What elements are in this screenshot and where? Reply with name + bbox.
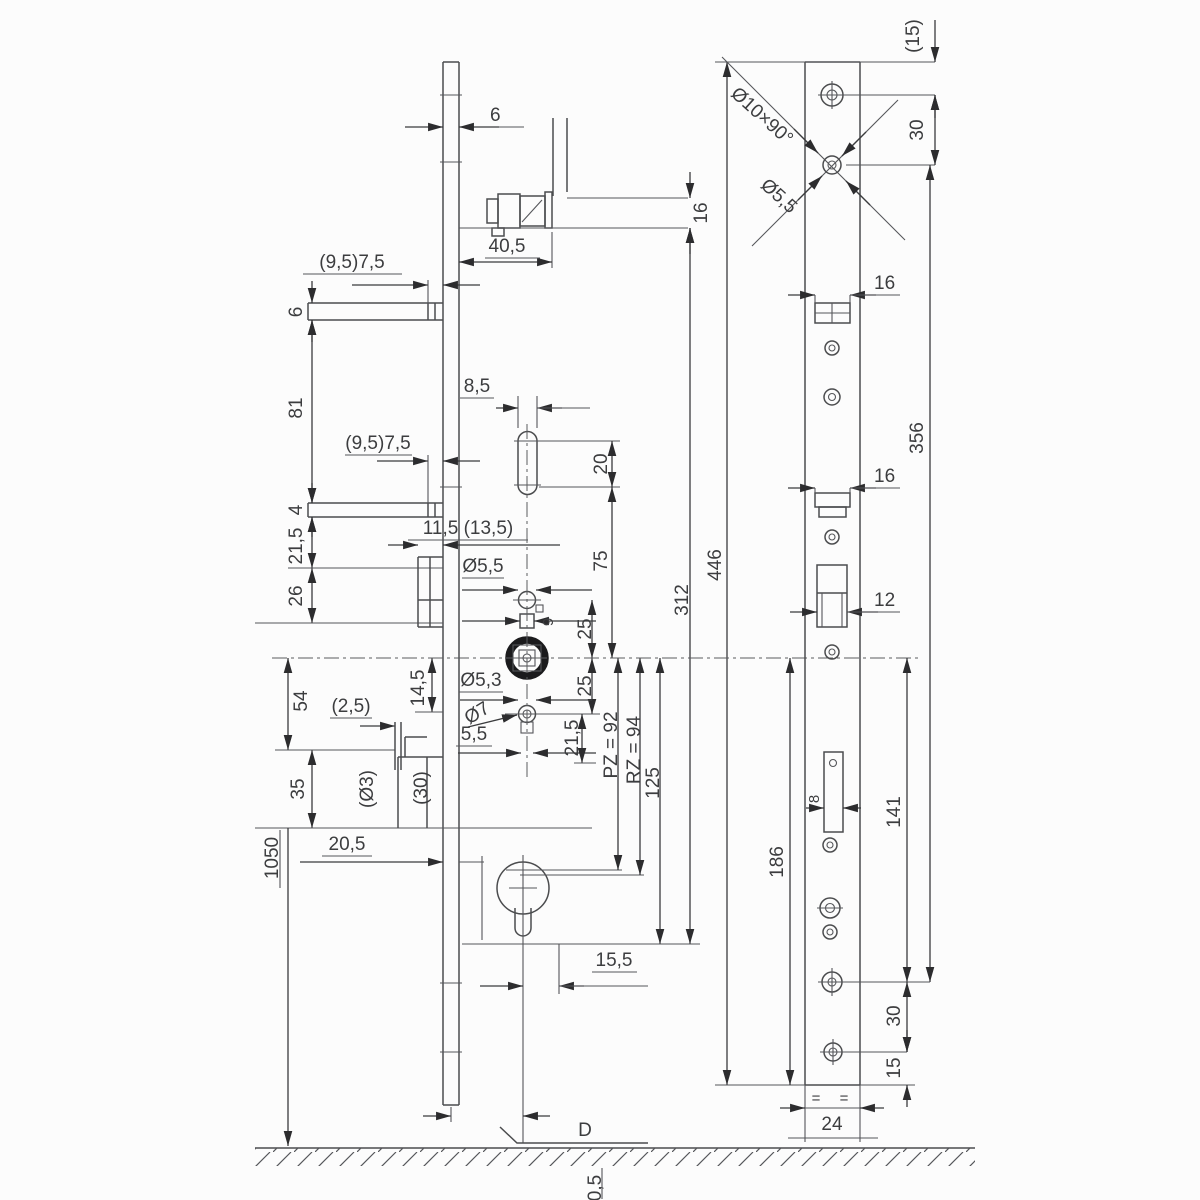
- dim-bottom-margin: 15: [884, 1057, 905, 1078]
- latch-slot-1: [815, 303, 850, 323]
- dim-strip-width: 6: [490, 105, 501, 126]
- datum-label: D: [578, 1120, 592, 1141]
- dim-356: 356: [907, 422, 928, 454]
- dim-slot2-width: 16: [874, 466, 895, 487]
- faceplate-strip: [440, 62, 462, 1105]
- rod-slot: [824, 752, 843, 832]
- dim-slot1-width: 16: [874, 273, 895, 294]
- dim-30p: (30): [411, 771, 432, 805]
- profile-cylinder: [497, 855, 549, 1143]
- dim-countersink: Ø10×90°: [726, 83, 796, 149]
- dim-keep1-offset: (9,5)7,5: [319, 252, 384, 273]
- dim-21-5-lower: 21,5: [562, 720, 583, 757]
- dim-spindle-square: 9: [540, 618, 557, 626]
- dim-5-5: 5,5: [461, 724, 487, 745]
- dim-plate-thickness: 4: [286, 504, 307, 515]
- dim-pz: PZ = 92: [601, 711, 622, 778]
- drawing-page: 16 40,5 6 (9,5)7,5 6 81: [0, 0, 1200, 1200]
- dim-75: 75: [591, 550, 612, 571]
- keep-band-1: [308, 303, 443, 320]
- dim-plate-width: 24: [821, 1114, 843, 1135]
- cable-connector: [487, 118, 567, 236]
- dim-slot-8: 8: [806, 795, 823, 803]
- side-view: 16 40,5 6 (9,5)7,5 6 81: [255, 62, 918, 1200]
- dim-hole-upper: Ø5,5: [462, 556, 503, 577]
- dim-hole-dia: Ø5,5: [756, 175, 801, 218]
- dim-floor-clearance: 0,5: [585, 1175, 606, 1200]
- dim-2-5: (2,5): [331, 696, 370, 717]
- dim-hole-pitch-top: 30: [907, 119, 928, 140]
- dim-125: 125: [643, 767, 664, 799]
- dim-141: 141: [884, 796, 905, 828]
- dim-25-upper: 25: [575, 618, 596, 639]
- ground-hatch: [255, 1148, 975, 1166]
- technical-drawing: 16 40,5 6 (9,5)7,5 6 81: [0, 0, 1200, 1200]
- dim-54: 54: [291, 690, 312, 712]
- dim-26: 26: [286, 585, 307, 606]
- equal-mark-left: =: [812, 1090, 821, 1107]
- dim-hole-pitch-bottom: 30: [884, 1005, 905, 1026]
- dim-312: 312: [672, 584, 693, 616]
- dim-21-5-upper: 21,5: [286, 528, 307, 565]
- dim-d3: (Ø3): [357, 770, 378, 808]
- dim-186: 186: [767, 846, 788, 878]
- dim-14-5: 14,5: [408, 670, 429, 707]
- dim-slot-height: 20: [591, 453, 612, 474]
- dim-keep2-offset: (9,5)7,5: [345, 433, 410, 454]
- front-view: (15) 30 Ø10×90° Ø5,5: [715, 19, 935, 1142]
- dim-slot-width: 8,5: [464, 376, 490, 397]
- dim-keep-depth: 11,5 (13,5): [423, 518, 513, 539]
- dim-top-margin: (15): [903, 19, 924, 53]
- dim-rz: RZ = 94: [624, 716, 645, 785]
- dim-hole-lower: Ø5,3: [460, 670, 501, 691]
- screw-holes: [817, 81, 846, 1065]
- dim-keep-gap: 81: [286, 397, 307, 418]
- equal-mark-right: =: [840, 1090, 849, 1107]
- main-latch-slot: [817, 565, 847, 627]
- dim-15-5: 15,5: [596, 950, 633, 971]
- latch-slot-2: [815, 493, 850, 517]
- dim-20-5: 20,5: [329, 834, 366, 855]
- dim-latch-width: 12: [874, 590, 895, 611]
- dim-446: 446: [705, 549, 726, 581]
- keep-band-2: [308, 503, 443, 517]
- dim-35: 35: [288, 778, 309, 799]
- dim-keep1-height: 6: [286, 307, 307, 318]
- dim-25-lower: 25: [575, 675, 596, 696]
- dim-cable-offset: 40,5: [489, 236, 526, 257]
- dim-cable-height: 16: [691, 202, 712, 223]
